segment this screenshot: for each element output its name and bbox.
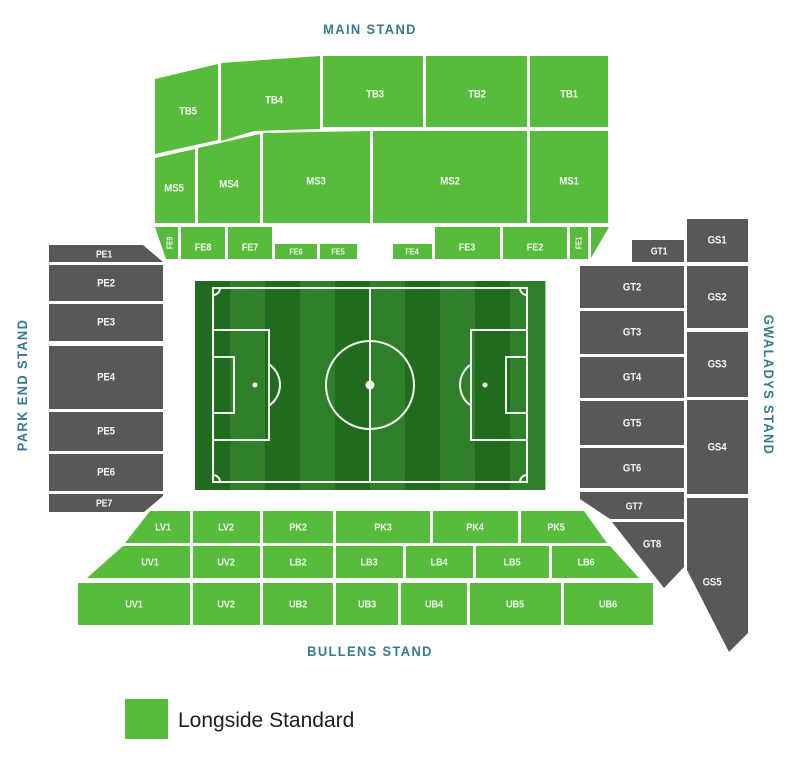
football-pitch — [195, 281, 546, 490]
section-FE3-label: FE3 — [459, 242, 476, 254]
section-LB4-label: LB4 — [431, 557, 449, 569]
section-FE6-label: FE6 — [289, 247, 303, 257]
section-UV1-lower-label: UV1 — [125, 599, 143, 611]
section-MS3-label: MS3 — [306, 176, 326, 188]
section-UB3-label: UB3 — [358, 599, 377, 611]
section-PE7-label: PE7 — [96, 497, 112, 509]
section-PE4-label: PE4 — [97, 372, 115, 384]
bullens-stand-label: BULLENS STAND — [307, 644, 433, 660]
section-FE2-label: FE2 — [527, 242, 544, 254]
section-GT8[interactable] — [612, 522, 684, 588]
section-GT8-label: GT8 — [643, 539, 662, 551]
section-TB1-label: TB1 — [560, 89, 578, 101]
section-FE9-label: FE9 — [165, 237, 175, 249]
section-PE1-label: PE1 — [96, 248, 112, 260]
section-UV1[interactable] — [87, 546, 190, 578]
section-GT3-label: GT3 — [623, 327, 642, 339]
section-UB5-label: UB5 — [506, 599, 525, 611]
section-LB2-label: LB2 — [290, 557, 308, 569]
legend-available-swatch — [125, 699, 168, 739]
section-GT5-label: GT5 — [623, 418, 642, 430]
section-FE8-label: FE8 — [195, 242, 212, 254]
section-PK4-label: PK4 — [466, 522, 484, 534]
section-GS4-label: GS4 — [708, 442, 727, 454]
section-UB4-label: UB4 — [425, 599, 444, 611]
section-FE7-label: FE7 — [242, 242, 259, 254]
section-GT2-label: GT2 — [623, 282, 642, 294]
decor-fe1-corner — [591, 227, 609, 258]
section-TB5-label: TB5 — [179, 106, 197, 118]
legend: Longside Standard — [125, 699, 354, 739]
section-LB3-label: LB3 — [361, 557, 379, 569]
section-UV2-lower-label: UV2 — [217, 599, 235, 611]
section-GT1-label: GT1 — [651, 245, 668, 257]
section-TB2-label: TB2 — [468, 89, 486, 101]
section-PK3-label: PK3 — [374, 522, 392, 534]
gwaladys-stand-label: GWALADYS STAND — [761, 315, 777, 456]
section-PE3-label: PE3 — [97, 317, 115, 329]
section-LV1-label: LV1 — [155, 522, 171, 534]
section-UB2-label: UB2 — [289, 599, 308, 611]
section-PK5-label: PK5 — [547, 522, 565, 534]
section-LB6[interactable] — [552, 546, 639, 578]
section-FE5-label: FE5 — [331, 247, 345, 257]
park-end-stand-label: PARK END STAND — [15, 319, 31, 452]
section-MS1-label: MS1 — [559, 176, 579, 188]
section-GS3-label: GS3 — [708, 359, 727, 371]
section-MS5-label: MS5 — [164, 183, 184, 195]
section-UB6-label: UB6 — [599, 599, 618, 611]
section-TB4-label: TB4 — [265, 95, 283, 107]
section-GS5-label: GS5 — [703, 577, 722, 589]
section-PK2-label: PK2 — [289, 522, 307, 534]
section-UV2-label: UV2 — [217, 557, 235, 569]
section-TB3-label: TB3 — [366, 89, 384, 101]
section-LV2-label: LV2 — [218, 522, 234, 534]
section-FE4-label: FE4 — [405, 247, 419, 257]
section-GS2-label: GS2 — [708, 292, 727, 304]
section-GS1-label: GS1 — [708, 235, 727, 247]
section-MS2-label: MS2 — [440, 176, 460, 188]
section-LB5-label: LB5 — [504, 557, 522, 569]
section-FE1-label: FE1 — [574, 237, 584, 249]
section-GT4-label: GT4 — [623, 372, 642, 384]
legend-available-label: Longside Standard — [178, 709, 354, 732]
section-PE5-label: PE5 — [97, 426, 115, 438]
section-PE2-label: PE2 — [97, 278, 115, 290]
section-UV1-label: UV1 — [141, 557, 159, 569]
stadium-seat-map: TB5TB4TB3TB2TB1MS5MS4MS3MS2MS1FE9FE8FE7F… — [0, 0, 798, 766]
section-GT6-label: GT6 — [623, 463, 642, 475]
section-MS4-label: MS4 — [219, 179, 239, 191]
section-LB6-label: LB6 — [578, 557, 596, 569]
section-GT7-label: GT7 — [626, 500, 643, 512]
main-stand-label: MAIN STAND — [323, 22, 417, 38]
section-GS5[interactable] — [687, 498, 748, 652]
section-PE6-label: PE6 — [97, 467, 115, 479]
